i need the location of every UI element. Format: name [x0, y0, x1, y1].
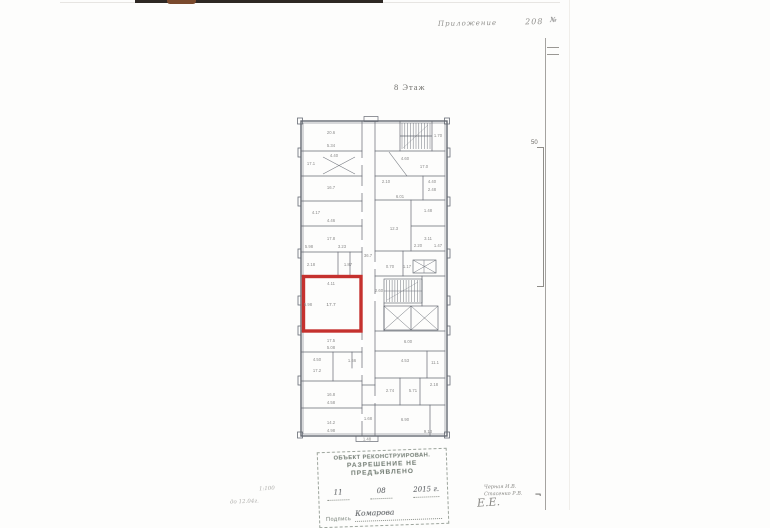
stamp-signature: Комарова	[355, 508, 394, 518]
stair-hatch-middle	[384, 279, 422, 303]
room-label: 1.87	[344, 262, 353, 267]
room-label: 1.48	[363, 437, 372, 442]
room-label: 36.7	[364, 253, 373, 258]
stamp-date-year-slot: 2015 г.	[413, 478, 439, 498]
stamp-date-year: 2015 г.	[413, 485, 439, 494]
scale-note: 1:100	[259, 486, 275, 493]
room-label: 5.98	[305, 244, 314, 249]
room-label: 5.98	[304, 302, 313, 307]
room-label: 1.47	[434, 243, 443, 248]
room-label: 4.50	[313, 357, 322, 362]
scan-rust-mark	[167, 0, 196, 4]
room-label: 3.11	[424, 236, 433, 241]
room-label: 6.00	[404, 339, 413, 344]
stamp-date-month: 08	[377, 487, 386, 495]
room-label: 17.2	[313, 368, 322, 373]
floor-plan: 20.6 5.34 17.1 4.40 16.7 4.17 4.46 17.8 …	[286, 106, 461, 451]
room-label: 1.48	[424, 208, 433, 213]
room-label: 17.1	[307, 161, 316, 166]
date-note: до 12.04г.	[230, 498, 259, 505]
elevator-shafts	[384, 306, 438, 330]
stamp-date-month-slot: 08	[370, 480, 393, 500]
highlighted-room-area-label: 17.7	[326, 302, 336, 308]
room-label: 1.66	[348, 358, 357, 363]
handwritten-note: Приложение208	[438, 17, 544, 28]
margin-rule	[545, 38, 546, 510]
stamp-signature-label: Подпись	[326, 516, 351, 523]
handwritten-note-word: Приложение	[438, 19, 497, 28]
reconstruction-stamp: ОБЪЕКТ РЕКОНСТРУИРОВАН. РАЗРЕШЕНИЕ НЕ ПР…	[317, 448, 450, 528]
room-label: 2.20	[414, 243, 423, 248]
room-label: 4.58	[327, 400, 336, 405]
room-label: 9.13	[424, 429, 433, 434]
room-label: 2.18	[307, 262, 316, 267]
room-label: 4.17	[312, 210, 321, 215]
room-label: 4.46	[327, 218, 336, 223]
dimension-bracket	[543, 147, 544, 287]
margin-number-mark: №	[550, 16, 557, 24]
room-label: 20.6	[327, 130, 336, 135]
room-label: 11.1	[431, 360, 440, 365]
room-label: 2.10	[382, 179, 391, 184]
dimension-label: 50	[531, 140, 538, 146]
shaft-hatch	[413, 260, 436, 273]
margin-double-dash	[547, 47, 559, 55]
room-label: 6.01	[396, 194, 405, 199]
room-label: 4.40	[428, 179, 437, 184]
room-label: 2.74	[386, 388, 395, 393]
stamp-signature-row: Подпись Комарова	[326, 500, 443, 523]
page-edge-shadow	[569, 0, 570, 510]
room-label: 4.11	[327, 281, 336, 286]
room-label: 12.3	[390, 226, 399, 231]
room-label: 5.71	[409, 388, 418, 393]
room-label: 4.98	[327, 428, 336, 433]
room-label: 0.70	[386, 264, 395, 269]
room-label: 4.60	[401, 156, 410, 161]
room-label: 17.5	[327, 338, 336, 343]
room-label: 1.17	[403, 264, 412, 269]
signature-flourish: Е.Е.	[477, 495, 501, 510]
room-label: 17.0	[420, 164, 429, 169]
room-label: 16.7	[327, 185, 336, 190]
room-label: 16.8	[327, 392, 336, 397]
stamp-date-day-slot: 11	[327, 481, 350, 501]
stamp-date-row: 11 08 2015 г.	[327, 478, 440, 501]
room-label: 2.18	[430, 382, 439, 387]
room-label: 6.90	[401, 417, 410, 422]
room-label: 4.40	[330, 153, 339, 158]
stamp-signature-line: Комарова	[355, 500, 442, 522]
room-label: 1.68	[364, 416, 373, 421]
handwritten-note-number: 208	[525, 17, 543, 26]
room-label: 5.34	[327, 143, 336, 148]
floor-title: 8 Этаж	[394, 82, 425, 92]
room-label: 3.23	[338, 244, 347, 249]
stamp-date-day: 11	[334, 488, 343, 496]
room-label: 5.08	[327, 345, 336, 350]
room-label: 2.48	[428, 187, 437, 192]
room-label: 14.2	[327, 420, 336, 425]
room-label: 1.70	[434, 133, 443, 138]
room-label: 17.8	[327, 236, 336, 241]
room-label: 4.53	[401, 358, 410, 363]
room-label: 2.60	[375, 288, 384, 293]
corner-bracket-mark: ¬	[535, 490, 541, 501]
